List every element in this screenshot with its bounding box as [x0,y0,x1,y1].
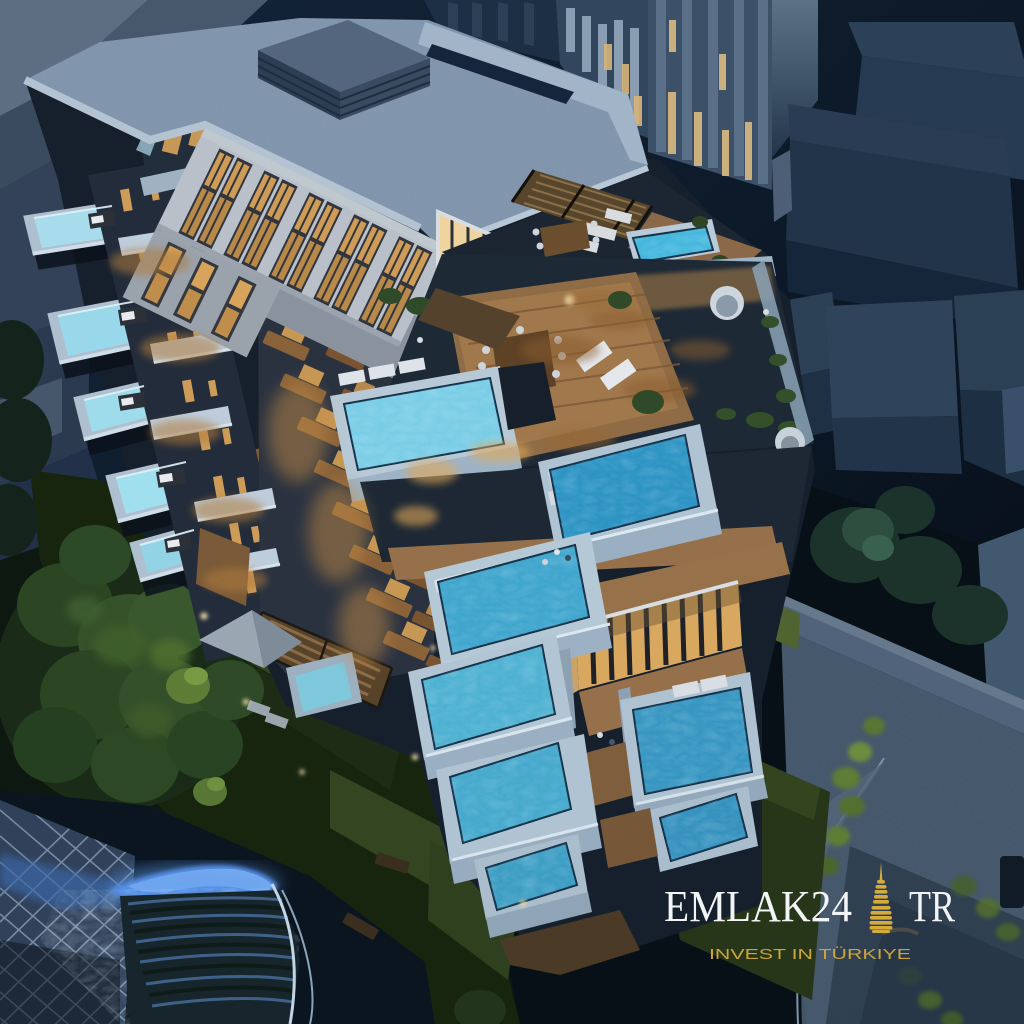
svg-text:EMLAK24: EMLAK24 [664,882,852,931]
svg-text:INVEST IN TÜRKIYE: INVEST IN TÜRKIYE [709,945,911,963]
svg-text:TR: TR [909,882,956,931]
